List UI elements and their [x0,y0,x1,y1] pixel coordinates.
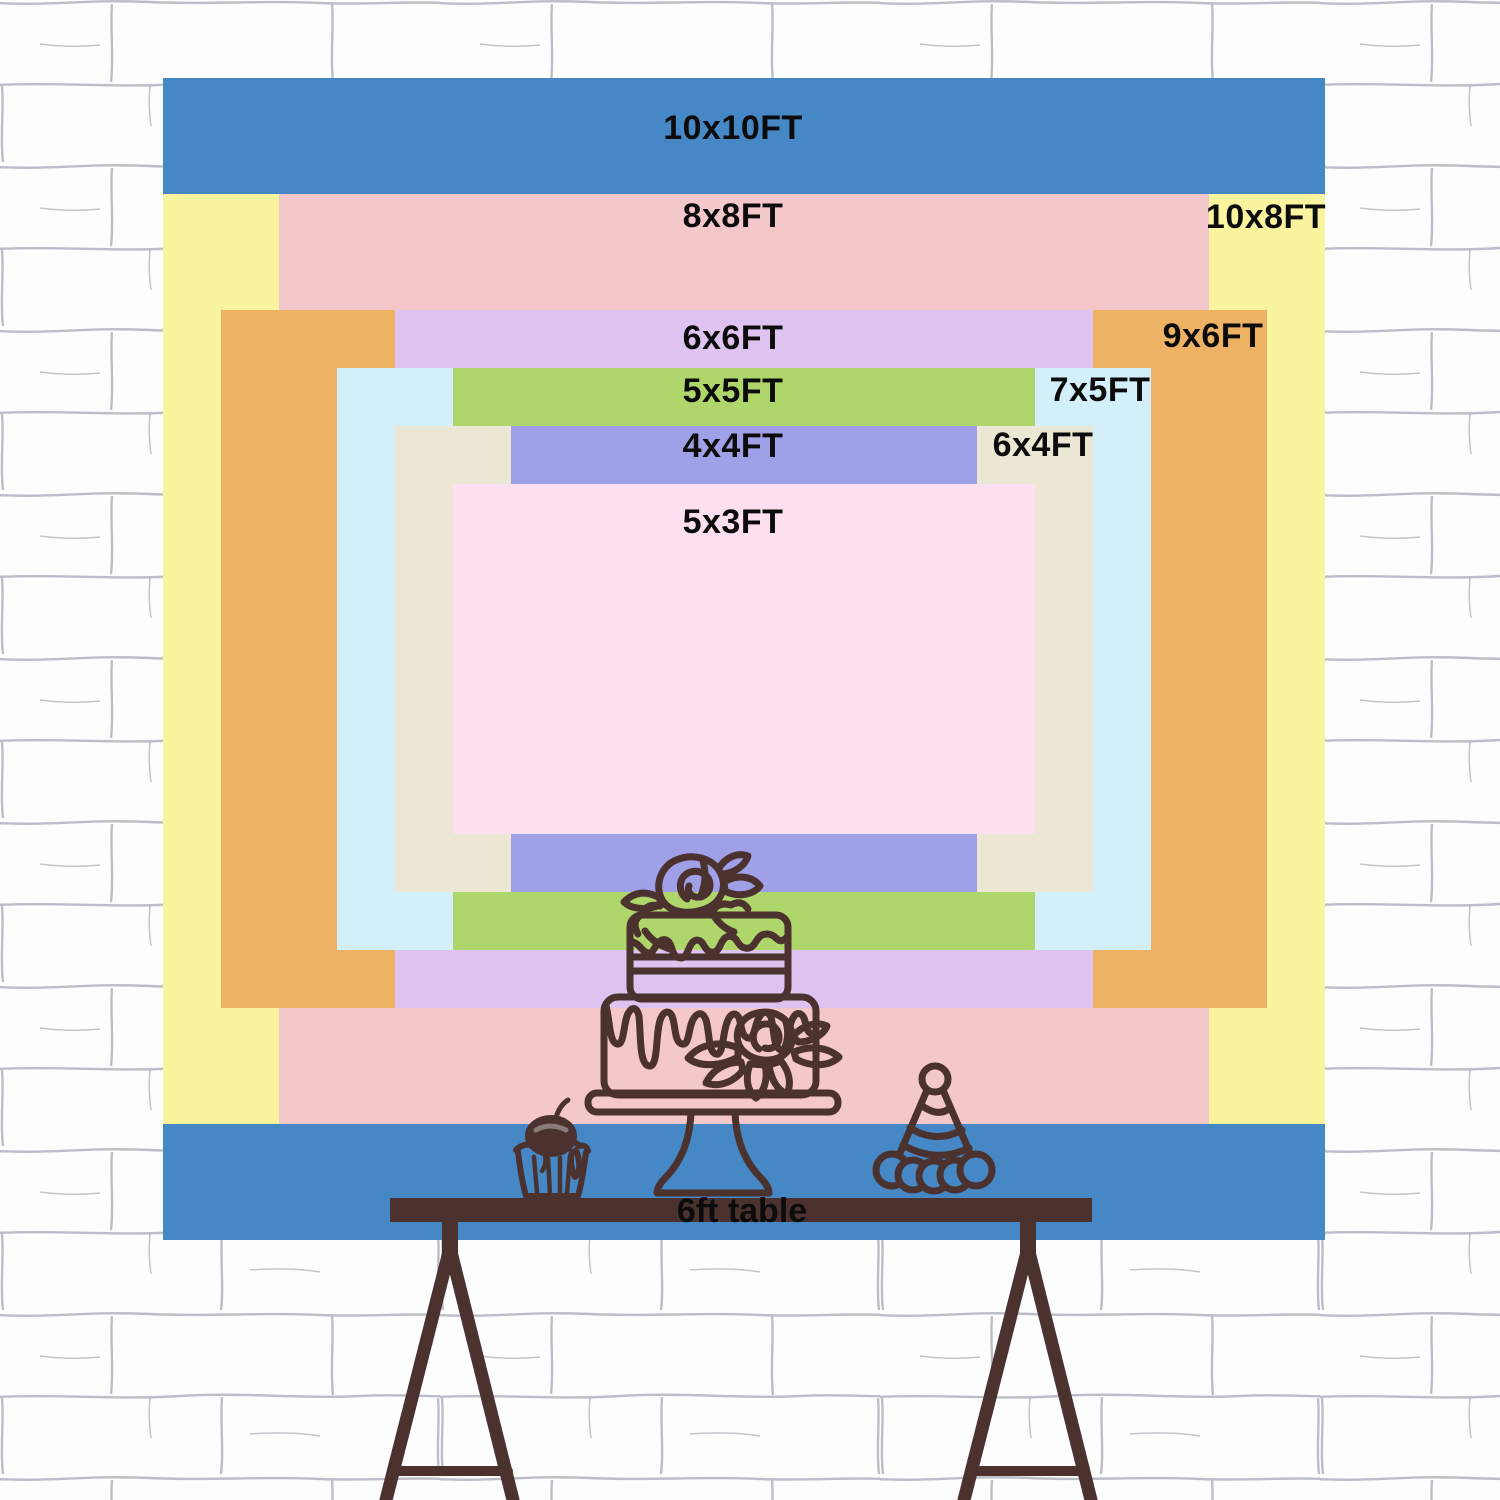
size-label-5x5ft: 5x5FT [683,374,784,408]
size-label-6x6ft: 6x6FT [683,321,784,355]
size-label-9x6ft: 9x6FT [1163,319,1264,353]
size-label-4x4ft: 4x4FT [683,429,784,463]
size-label-6x4ft: 6x4FT [993,428,1094,462]
backdrop-size-chart-scene: 10x10FT 10x8FT 8x8FT 9x6FT 6x6FT 7x5FT 5… [0,0,1500,1500]
size-label-10x8ft: 10x8FT [1206,200,1326,234]
size-label-7x5ft: 7x5FT [1050,373,1151,407]
size-label-10x10ft: 10x10FT [663,111,803,145]
size-label-5x3ft: 5x3FT [683,505,784,539]
table-length-label: 6ft table [677,1194,807,1228]
size-label-8x8ft: 8x8FT [683,199,784,233]
